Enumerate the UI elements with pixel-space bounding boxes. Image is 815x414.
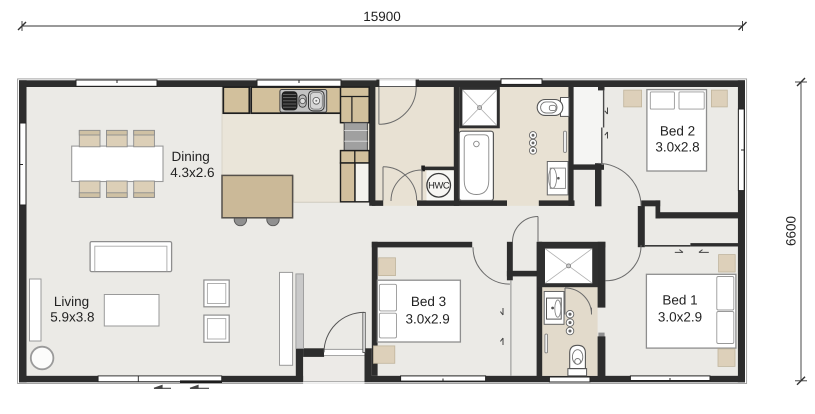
svg-text:3.0x2.8: 3.0x2.8	[655, 139, 699, 154]
svg-text:Bed 2: Bed 2	[660, 123, 695, 138]
svg-text:4.3x2.6: 4.3x2.6	[170, 165, 214, 180]
svg-text:Living: Living	[54, 294, 89, 309]
svg-text:3.0x2.9: 3.0x2.9	[658, 310, 702, 325]
svg-text:3.0x2.9: 3.0x2.9	[405, 311, 449, 326]
svg-text:Bed 3: Bed 3	[411, 294, 446, 309]
svg-text:Bed 1: Bed 1	[662, 293, 697, 308]
svg-text:5.9x3.8: 5.9x3.8	[50, 310, 94, 325]
svg-text:HWC: HWC	[428, 180, 450, 191]
svg-text:15900: 15900	[363, 9, 401, 24]
svg-text:6600: 6600	[784, 216, 799, 246]
svg-text:Dining: Dining	[172, 149, 210, 164]
